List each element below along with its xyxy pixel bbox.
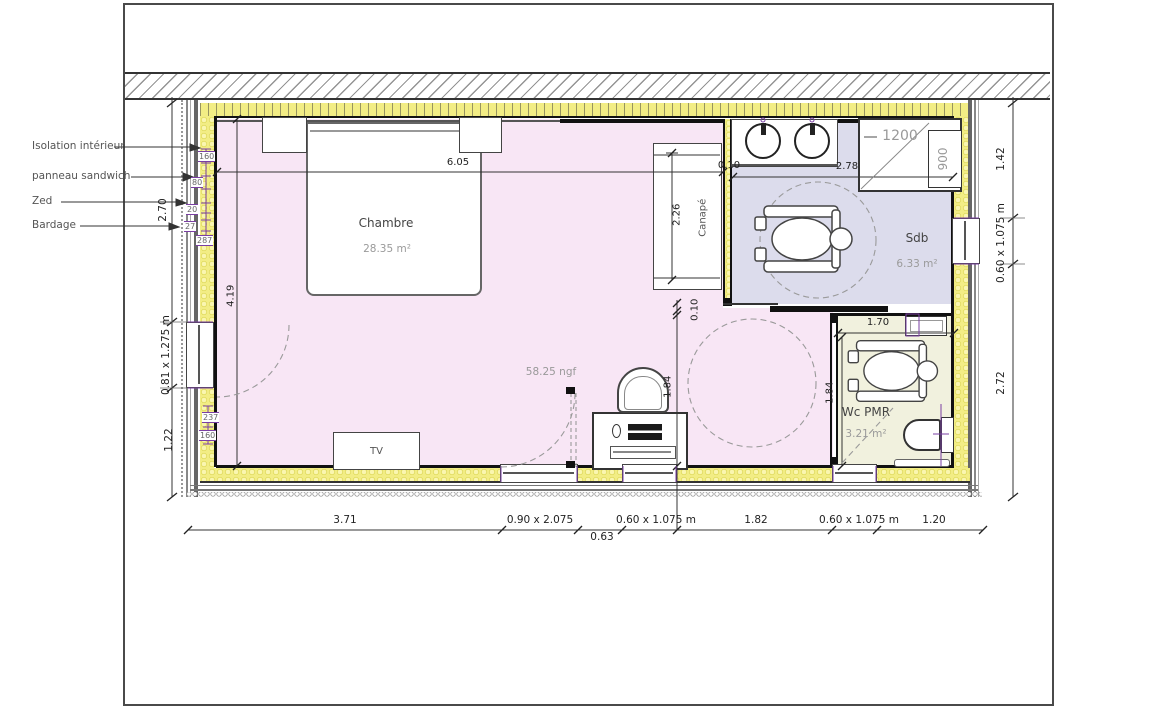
dim-bottom-sub: 0.63 bbox=[577, 531, 627, 543]
layer-dim-bardage: 27 bbox=[184, 221, 196, 232]
entry-door-swing-arc bbox=[501, 393, 575, 467]
dimension-lines bbox=[172, 97, 1013, 530]
legend-panneau: panneau sandwich bbox=[32, 170, 130, 182]
wheelchair-icon-sdb bbox=[755, 206, 852, 272]
dim-right-lower: 2.72 bbox=[995, 363, 1007, 403]
layer-dim-insulation: 160 bbox=[198, 151, 215, 162]
wheelchair-icon-wc bbox=[848, 341, 937, 402]
leader-lines bbox=[61, 144, 200, 230]
dim-right-window: 0.60 x 1.075 m bbox=[995, 198, 1007, 288]
layer-dim-panel: 80 bbox=[191, 177, 203, 188]
dim-bottom-seg3: 1.20 bbox=[904, 514, 964, 526]
dim-partition: 0.10 bbox=[707, 160, 751, 172]
layer-dim-lower-b: 160 bbox=[199, 430, 216, 441]
dim-sdb-width: 2.78 bbox=[825, 161, 869, 173]
sofa-label: Canapé bbox=[697, 188, 709, 248]
room-sdb-area: 6.33 m² bbox=[877, 258, 957, 270]
dim-left-lower: 1.22 bbox=[163, 420, 175, 460]
dim-bottom-door: 0.90 x 2.075 bbox=[493, 514, 587, 526]
layer-dim-zed: 20 bbox=[186, 204, 198, 215]
left-window-swing-arc bbox=[217, 325, 289, 397]
dim-bottom-win2: 0.60 x 1.075 m bbox=[812, 514, 906, 526]
dim-bottom-seg1: 3.71 bbox=[315, 514, 375, 526]
layer-dim-lower-a: 237 bbox=[202, 412, 219, 423]
dim-left-upper: 2.70 bbox=[157, 190, 169, 230]
legend-zed: Zed bbox=[32, 195, 52, 207]
dim-right-upper: 1.42 bbox=[995, 139, 1007, 179]
level-note: 58.25 ngf bbox=[511, 366, 591, 378]
shower-width-label: 1200 bbox=[876, 128, 924, 144]
room-chambre-name: Chambre bbox=[336, 217, 436, 231]
dim-canape: 2.26 bbox=[671, 195, 683, 235]
layer-dim-total: 287 bbox=[196, 235, 213, 246]
shower-depth-label: 900 bbox=[937, 139, 951, 179]
door-hinge-blocks bbox=[566, 387, 575, 468]
room-wc-area: 3.21 m² bbox=[816, 428, 916, 440]
turning-circle-hall bbox=[688, 319, 816, 447]
legend-bardage: Bardage bbox=[32, 219, 76, 231]
dim-hall: 1.84 bbox=[662, 367, 674, 407]
dim-room-width: 6.05 bbox=[433, 157, 483, 169]
dim-bottom-seg2: 1.82 bbox=[726, 514, 786, 526]
dim-bottom-win1: 0.60 x 1.075 m bbox=[609, 514, 703, 526]
dim-left-window: 0.81 x 1.275 m bbox=[160, 310, 172, 400]
room-chambre-area: 28.35 m² bbox=[337, 243, 437, 255]
dim-slide-wall: 0.10 bbox=[689, 290, 701, 330]
room-wc-name: Wc PMR bbox=[816, 406, 916, 420]
floor-plan-canvas: TV bbox=[0, 0, 1150, 720]
legend-isolation: Isolation intérieur bbox=[32, 140, 125, 152]
room-sdb-name: Sdb bbox=[877, 232, 957, 246]
dim-room-height: 4.19 bbox=[225, 276, 237, 316]
dim-wc-door: 1.70 bbox=[856, 317, 900, 329]
plan-linework-overlay bbox=[0, 0, 1150, 720]
